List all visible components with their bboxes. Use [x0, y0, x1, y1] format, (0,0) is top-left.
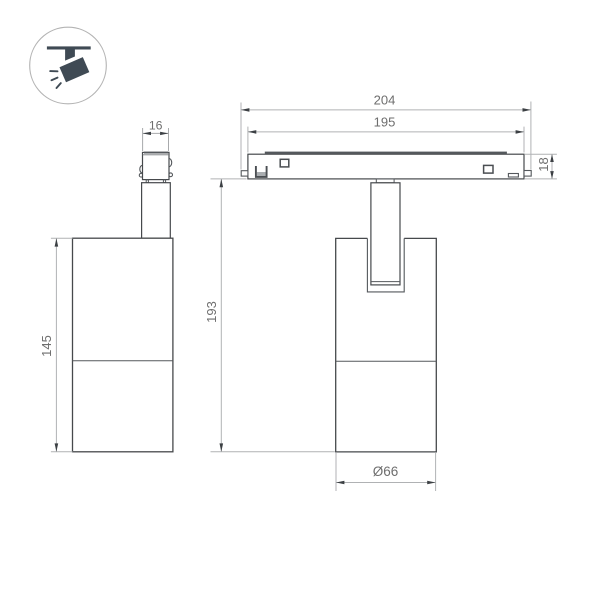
svg-text:16: 16	[149, 118, 163, 132]
svg-text:Ø66: Ø66	[373, 464, 399, 479]
svg-text:193: 193	[204, 301, 219, 323]
svg-text:145: 145	[39, 335, 54, 357]
svg-text:18: 18	[536, 157, 551, 171]
svg-text:195: 195	[374, 114, 396, 129]
svg-text:204: 204	[374, 92, 396, 107]
